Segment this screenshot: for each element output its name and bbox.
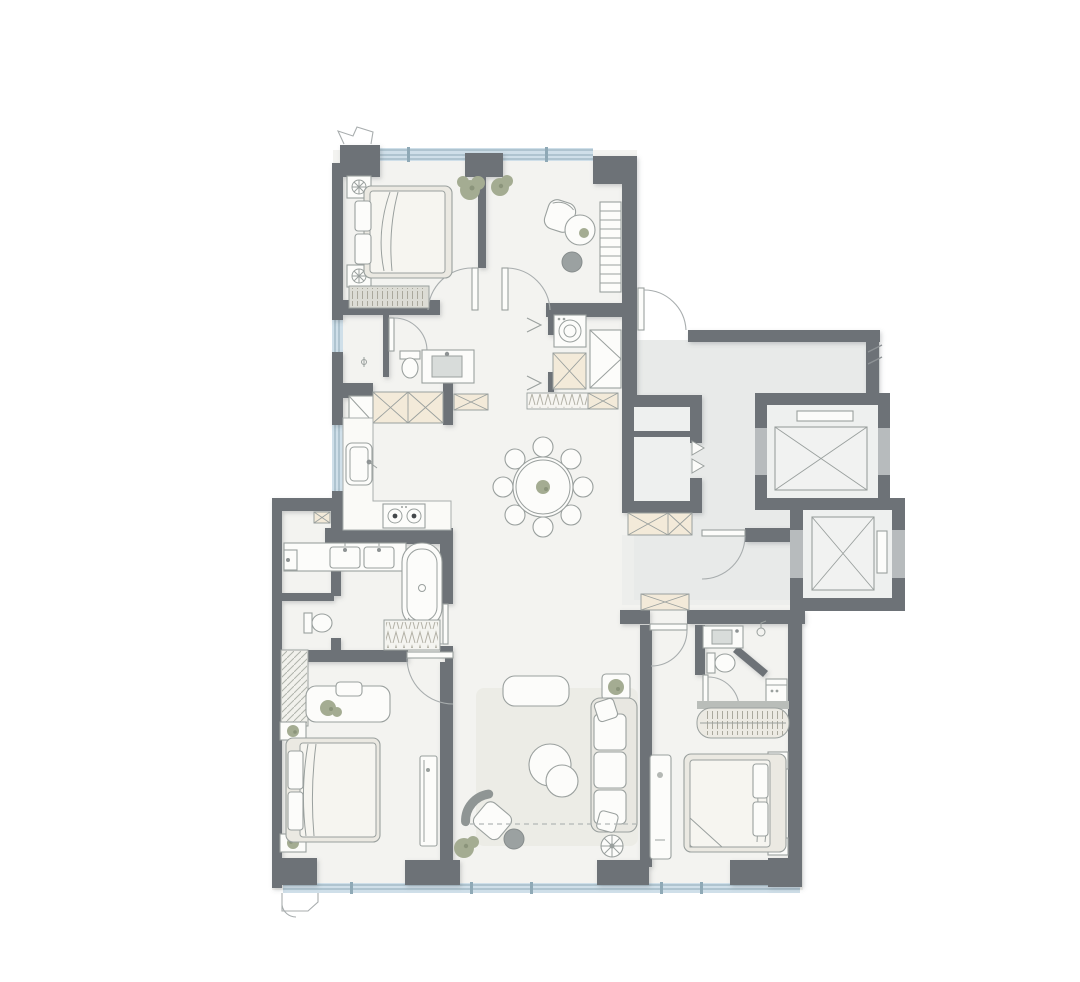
pillow	[355, 201, 371, 231]
tv-console	[503, 676, 569, 706]
ensuite-vanity	[703, 626, 743, 648]
pillow	[355, 234, 371, 264]
double-vanity	[284, 543, 406, 571]
elevator-2-counterweight	[877, 531, 887, 573]
side-table	[602, 674, 630, 700]
elevator-1-car	[775, 427, 867, 490]
toilet-3	[707, 653, 735, 673]
bedroom-2-door-leaf	[407, 652, 453, 658]
ottoman	[504, 829, 524, 849]
mini-fridge	[766, 679, 787, 703]
sliding-wardrobe-3	[697, 701, 789, 738]
pillow	[288, 751, 303, 789]
floor-plan	[0, 0, 1080, 982]
coat-rack	[527, 393, 588, 409]
storage-interior	[634, 407, 690, 501]
dining-group	[493, 437, 593, 537]
dresser-bench	[349, 286, 429, 308]
shoe-cabinet-1	[628, 513, 692, 535]
low-bench-3	[650, 755, 671, 859]
tv-bench-2	[420, 756, 437, 846]
suite-door-leaf	[650, 624, 687, 630]
elevator-2-car	[812, 517, 874, 590]
floor-lamp	[601, 835, 623, 857]
bed-1	[355, 186, 452, 278]
wc1-door-leaf	[389, 318, 394, 351]
pillow	[288, 792, 303, 830]
bed-3	[684, 754, 786, 852]
basin-counter	[422, 350, 474, 383]
stair-door-leaf	[638, 288, 644, 330]
duct-shaft	[553, 353, 586, 389]
washing-machine	[554, 315, 586, 347]
linen-bench	[384, 620, 440, 650]
wardrobe-2	[281, 650, 308, 726]
tall-cabinet	[590, 330, 621, 388]
stair-door-swing	[644, 290, 686, 330]
elevator-1	[755, 393, 890, 510]
bathtub	[402, 543, 442, 627]
pillow	[753, 764, 768, 798]
entry-door-leaf	[702, 530, 745, 536]
desk-2	[306, 682, 390, 722]
nightstand	[280, 722, 306, 740]
bookshelf	[600, 202, 621, 292]
pillow	[753, 802, 768, 836]
toilet-1	[400, 351, 420, 378]
bottom-left-ledge	[282, 893, 318, 917]
side-table-plant-icon	[608, 679, 624, 695]
desk-chair-2	[336, 682, 362, 696]
toilet-2	[304, 613, 332, 633]
table-plant-icon	[579, 228, 589, 238]
dining-table	[513, 457, 573, 517]
shoe-cabinet-small	[588, 393, 618, 409]
cooktop	[383, 504, 425, 528]
stool	[562, 252, 582, 272]
bath-2-door-leaf	[443, 604, 448, 644]
shoe-cabinet-2	[641, 594, 689, 610]
throw-pillow	[596, 810, 619, 833]
sofa	[591, 697, 637, 833]
coffee-table-small	[546, 765, 578, 797]
elevator-2	[790, 498, 905, 611]
kitchen-sink	[346, 443, 377, 485]
centerpiece-plant-icon	[536, 480, 550, 494]
round-table	[565, 215, 595, 245]
study-door-leaf	[502, 268, 508, 310]
floor-plan-stage	[0, 0, 1080, 982]
living-group	[454, 674, 638, 858]
top-left-ledge	[338, 127, 373, 144]
bed-2	[286, 738, 380, 842]
bedroom-1-door-leaf	[472, 268, 478, 310]
elevator-1-sill	[797, 411, 853, 421]
